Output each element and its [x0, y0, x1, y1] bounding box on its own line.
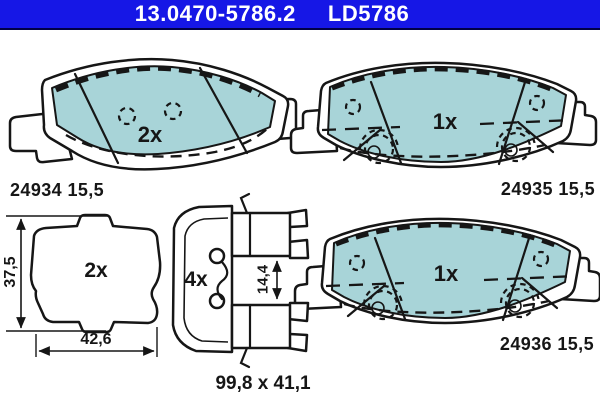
part-label-24936: 24936 15,5 [462, 335, 594, 353]
overall-size-label: 99,8 x 41,1 [193, 374, 333, 393]
dimension-label-height: 37,5 [3, 242, 19, 302]
dimension-label-gap: 14,4 [256, 250, 271, 310]
clip-spring-lobe [210, 294, 224, 308]
clip-spring-lobe [210, 249, 224, 263]
part-label-24934: 24934 15,5 [10, 181, 104, 199]
quantity-top-left: 2x [130, 124, 170, 146]
part-label-24935: 24935 15,5 [465, 180, 595, 198]
quantity-shim: 2x [76, 260, 116, 281]
dimension-label-width: 42,6 [60, 332, 132, 348]
clip-bottom-bar [232, 305, 290, 348]
quantity-top-right: 1x [425, 111, 465, 133]
pad-drawing-top-left [10, 59, 296, 169]
brake-pad-technical-sheet: 13.0470-5786.2 LD5786 [0, 0, 600, 400]
quantity-bottom-right: 1x [426, 263, 466, 285]
quantity-clip: 4x [176, 269, 216, 290]
